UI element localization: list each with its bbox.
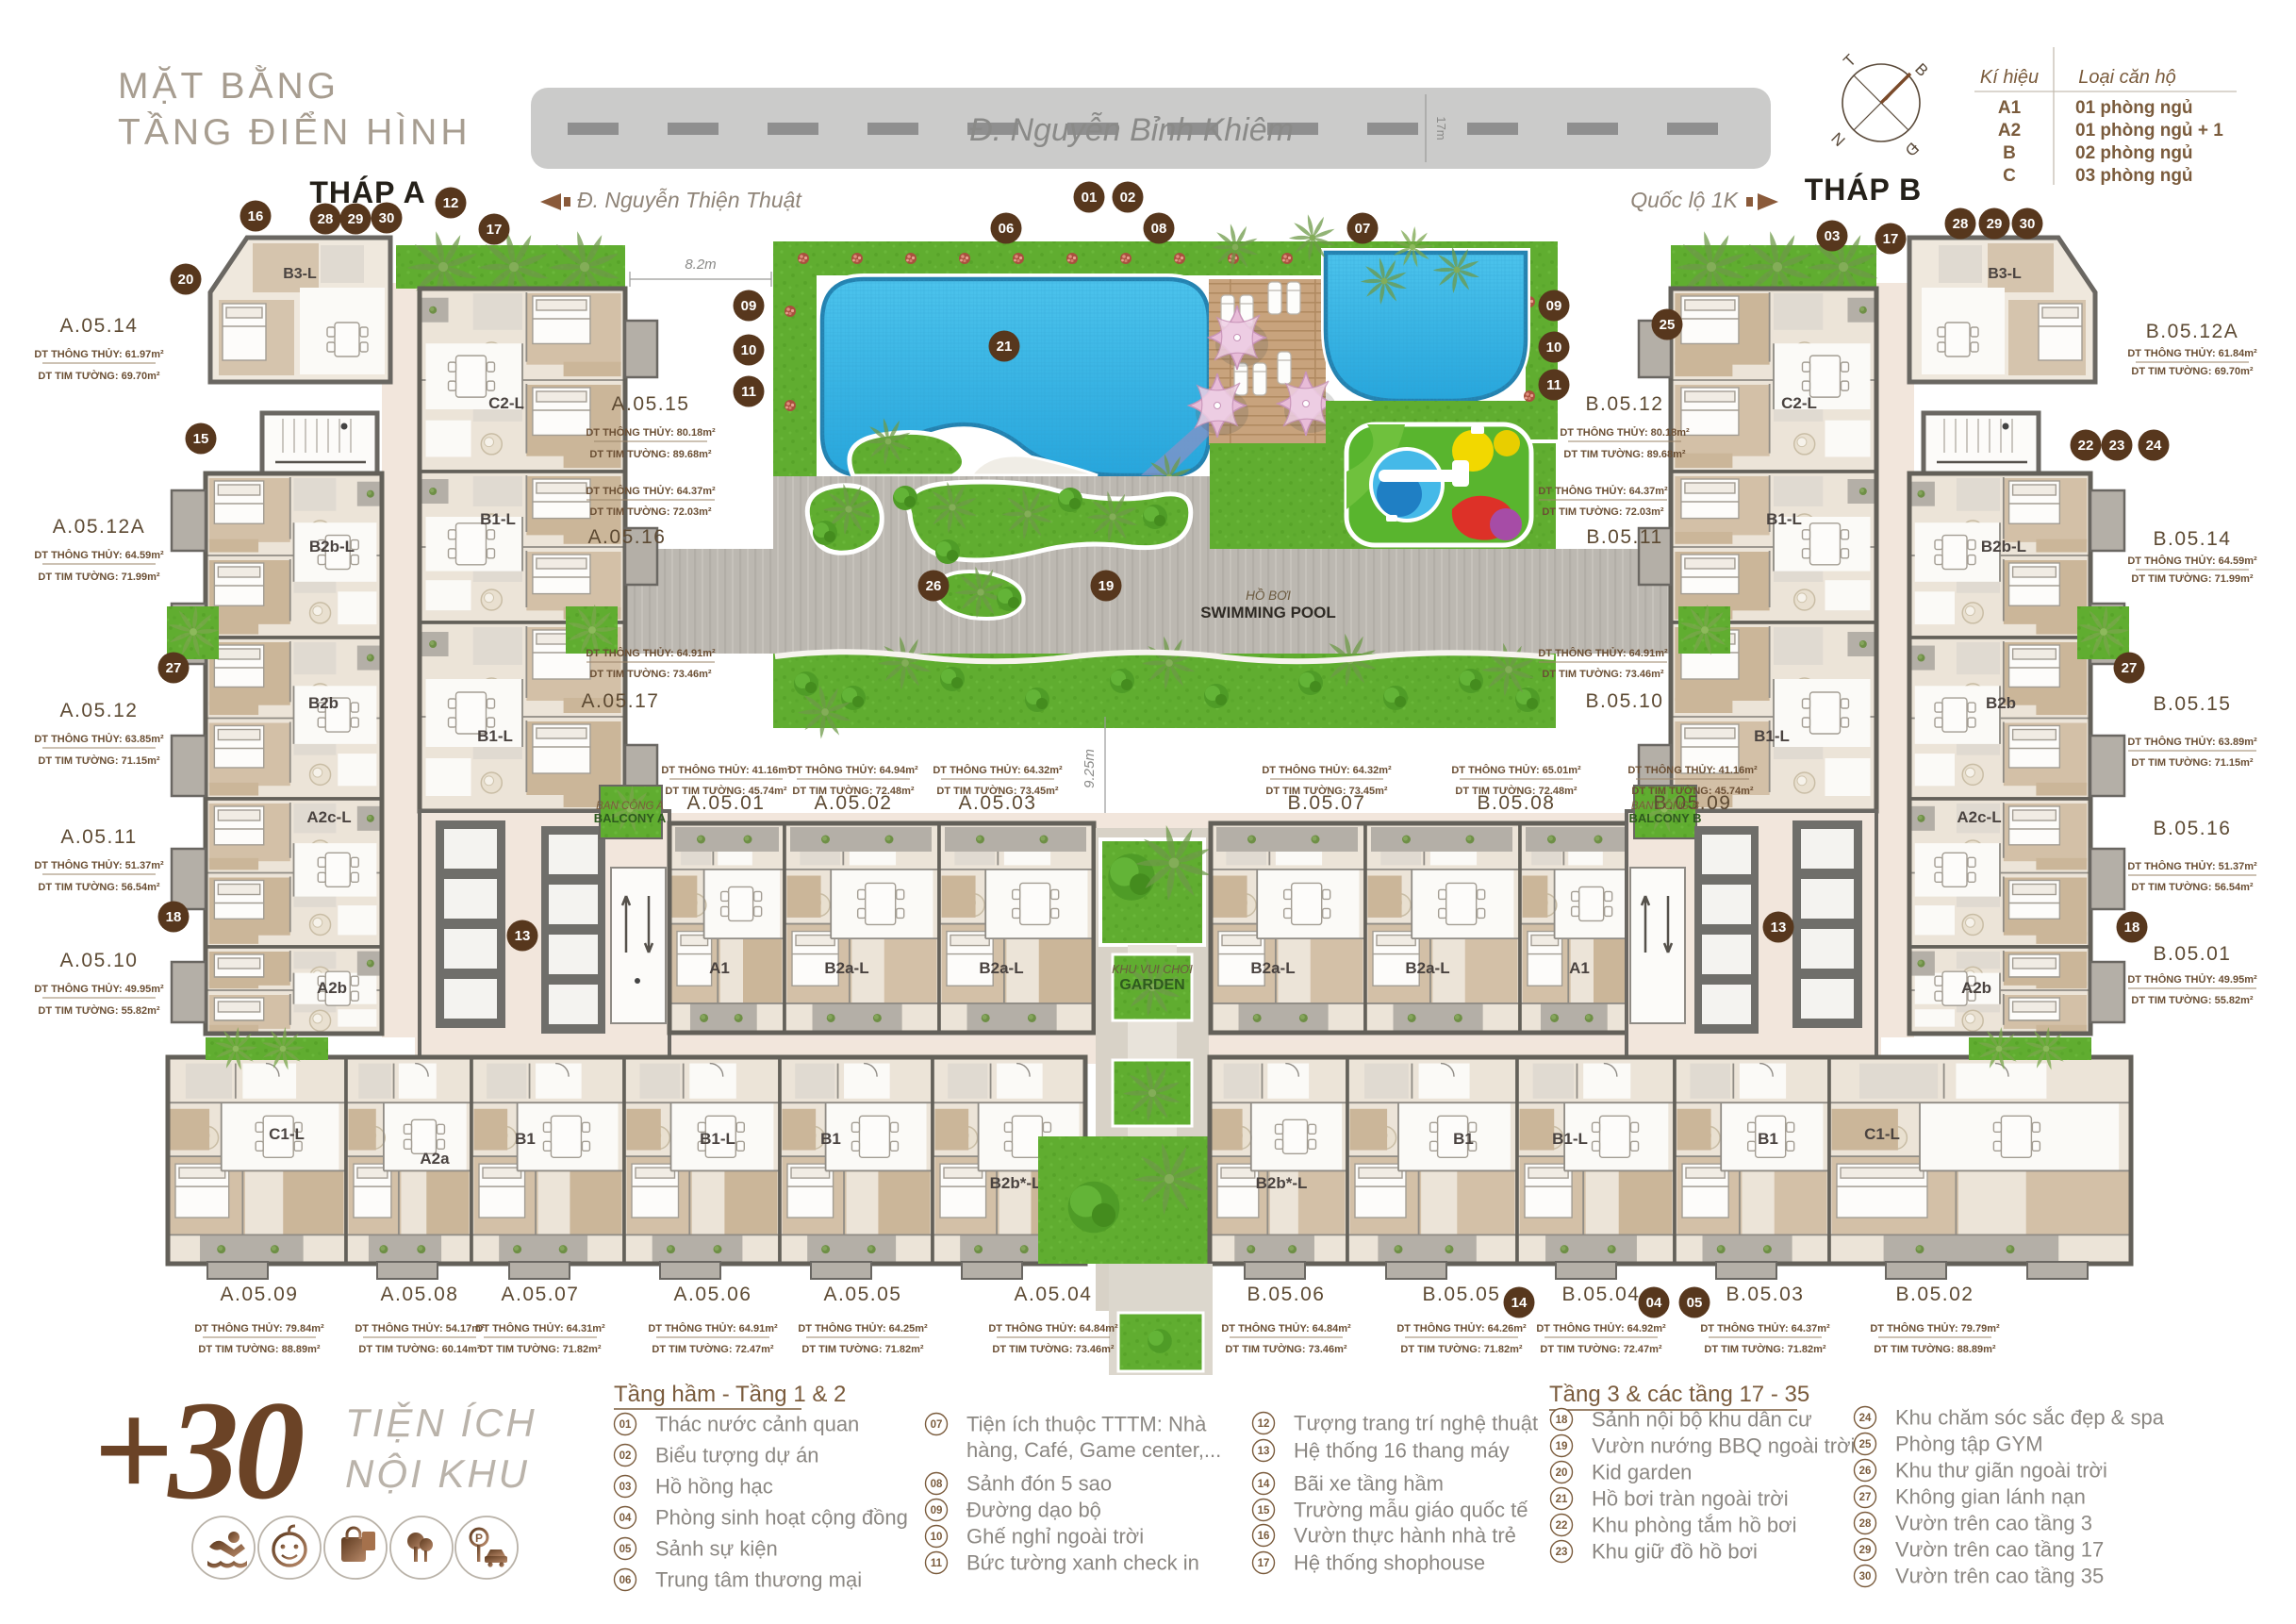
svg-text:DT THÔNG THỦY: 64.91m²: DT THÔNG THỦY: 64.91m² — [1538, 647, 1668, 659]
svg-text:TẦNG ĐIỂN HÌNH: TẦNG ĐIỂN HÌNH — [118, 110, 471, 153]
svg-text:MẶT BẰNG: MẶT BẰNG — [118, 65, 339, 107]
svg-text:A2b: A2b — [1961, 979, 1991, 997]
svg-text:Vườn thực hành nhà trẻ: Vườn thực hành nhà trẻ — [1294, 1524, 1516, 1548]
svg-text:01: 01 — [1082, 190, 1098, 206]
svg-text:DT TIM TƯỜNG: 73.46m²: DT TIM TƯỜNG: 73.46m² — [589, 668, 711, 680]
svg-text:B2a-L: B2a-L — [979, 959, 1023, 977]
svg-text:B2b-L: B2b-L — [1981, 538, 2026, 555]
svg-text:Ghế nghỉ ngoài trời: Ghế nghỉ ngoài trời — [966, 1525, 1144, 1549]
svg-text:KHU VUI CHƠI: KHU VUI CHƠI — [1112, 963, 1193, 976]
svg-text:DT THÔNG THỦY: 64.32m²: DT THÔNG THỦY: 64.32m² — [933, 764, 1063, 776]
svg-text:26: 26 — [1859, 1466, 1872, 1477]
svg-text:Khu chăm sóc sắc đẹp & spa: Khu chăm sóc sắc đẹp & spa — [1895, 1406, 2165, 1430]
svg-text:02: 02 — [1120, 190, 1136, 206]
svg-text:Bãi xe tầng hầm: Bãi xe tầng hầm — [1294, 1472, 1444, 1496]
svg-text:DT TIM TƯỜNG: 69.70m²: DT TIM TƯỜNG: 69.70m² — [2131, 365, 2253, 377]
svg-text:DT TIM TƯỜNG: 72.47m²: DT TIM TƯỜNG: 72.47m² — [652, 1343, 773, 1355]
svg-text:SWIMMING POOL: SWIMMING POOL — [1200, 604, 1336, 621]
svg-text:B.05.08: B.05.08 — [1478, 792, 1556, 814]
svg-text:DT TIM TƯỜNG: 56.54m²: DT TIM TƯỜNG: 56.54m² — [38, 881, 159, 893]
svg-text:DT THÔNG THỦY: 79.84m²: DT THÔNG THỦY: 79.84m² — [194, 1322, 324, 1334]
svg-text:B.05.12: B.05.12 — [1586, 393, 1664, 415]
svg-text:B.05.11: B.05.11 — [1586, 526, 1662, 548]
svg-text:22: 22 — [1556, 1520, 1568, 1532]
svg-text:06: 06 — [619, 1575, 632, 1586]
svg-text:B.05.12A: B.05.12A — [2146, 321, 2238, 342]
svg-text:DT THÔNG THỦY: 49.95m²: DT THÔNG THỦY: 49.95m² — [34, 983, 164, 995]
svg-text:A2c-L: A2c-L — [306, 808, 351, 826]
svg-text:13: 13 — [515, 928, 531, 944]
svg-text:05: 05 — [1687, 1295, 1703, 1311]
svg-text:DT TIM TƯỜNG: 71.99m²: DT TIM TƯỜNG: 71.99m² — [2131, 572, 2253, 585]
svg-text:DT TIM TƯỜNG: 72.47m²: DT TIM TƯỜNG: 72.47m² — [1540, 1343, 1661, 1355]
svg-text:17: 17 — [487, 222, 503, 238]
svg-text:A.05.16: A.05.16 — [588, 526, 667, 548]
svg-text:A2c-L: A2c-L — [1957, 808, 2001, 826]
svg-text:A1: A1 — [709, 959, 730, 977]
svg-text:A.05.12: A.05.12 — [60, 700, 139, 721]
svg-text:B2b: B2b — [308, 694, 339, 712]
svg-text:Vườn trên cao tầng 35: Vườn trên cao tầng 35 — [1895, 1565, 2104, 1588]
svg-text:17: 17 — [1258, 1558, 1270, 1569]
svg-text:A.05.17: A.05.17 — [582, 690, 660, 712]
svg-text:Đ. Nguyễn Thiện Thuật: Đ. Nguyễn Thiện Thuật — [577, 187, 802, 212]
svg-text:A1: A1 — [1569, 959, 1590, 977]
svg-text:A2: A2 — [1998, 121, 2021, 141]
svg-text:DT TIM TƯỜNG: 88.89m²: DT TIM TƯỜNG: 88.89m² — [198, 1343, 320, 1355]
svg-text:A2b: A2b — [317, 979, 347, 997]
svg-text:A.05.03: A.05.03 — [959, 792, 1037, 814]
svg-text:08: 08 — [1151, 221, 1167, 237]
svg-text:A.05.09: A.05.09 — [221, 1284, 299, 1305]
svg-text:DT THÔNG THỦY: 63.85m²: DT THÔNG THỦY: 63.85m² — [34, 733, 164, 745]
svg-text:Đ. Nguyễn Bỉnh Khiêm: Đ. Nguyễn Bỉnh Khiêm — [969, 112, 1294, 148]
svg-text:Trung tâm thương mại: Trung tâm thương mại — [655, 1568, 862, 1592]
svg-text:A.05.15: A.05.15 — [612, 393, 690, 415]
svg-text:A1: A1 — [1998, 98, 2022, 118]
svg-text:DT TIM TƯỜNG: 71.82m²: DT TIM TƯỜNG: 71.82m² — [1704, 1343, 1825, 1355]
svg-text:09: 09 — [741, 298, 757, 314]
svg-text:Loại căn hộ: Loại căn hộ — [2078, 67, 2175, 88]
svg-text:Quốc lộ 1K: Quốc lộ 1K — [1630, 188, 1739, 212]
svg-text:DT TIM TƯỜNG: 73.46m²: DT TIM TƯỜNG: 73.46m² — [1225, 1343, 1346, 1355]
svg-text:B2b-L: B2b-L — [309, 538, 355, 555]
svg-text:Bức tường xanh check in: Bức tường xanh check in — [966, 1551, 1199, 1575]
svg-text:DT THÔNG THỦY: 64.84m²: DT THÔNG THỦY: 64.84m² — [988, 1322, 1118, 1334]
svg-text:Đường dạo bộ: Đường dạo bộ — [966, 1499, 1101, 1522]
svg-text:21: 21 — [997, 339, 1013, 355]
svg-text:03: 03 — [1825, 228, 1841, 244]
svg-text:Biểu tượng dự án: Biểu tượng dự án — [655, 1444, 819, 1467]
svg-text:DT TIM TƯỜNG: 71.15m²: DT TIM TƯỜNG: 71.15m² — [38, 754, 159, 767]
svg-text:DT THÔNG THỦY: 64.26m²: DT THÔNG THỦY: 64.26m² — [1396, 1322, 1527, 1334]
svg-text:02: 02 — [619, 1450, 632, 1462]
svg-text:09: 09 — [931, 1505, 943, 1516]
svg-text:DT THÔNG THỦY: 64.31m²: DT THÔNG THỦY: 64.31m² — [475, 1322, 605, 1334]
svg-text:21: 21 — [1556, 1494, 1568, 1505]
svg-text:P: P — [475, 1532, 483, 1545]
svg-text:29: 29 — [1987, 216, 2003, 232]
svg-text:A.05.06: A.05.06 — [674, 1284, 752, 1305]
svg-text:+30: +30 — [92, 1372, 303, 1529]
svg-text:B.05.15: B.05.15 — [2154, 693, 2232, 715]
svg-text:Tiện ích thuộc TTTM: Nhà: Tiện ích thuộc TTTM: Nhà — [966, 1413, 1207, 1436]
svg-text:A.05.10: A.05.10 — [60, 950, 139, 971]
svg-text:TIỆN ÍCH: TIỆN ÍCH — [345, 1400, 537, 1445]
svg-text:DT THÔNG THỦY: 64.91m²: DT THÔNG THỦY: 64.91m² — [586, 647, 716, 659]
svg-text:DT TIM TƯỜNG: 71.99m²: DT TIM TƯỜNG: 71.99m² — [38, 571, 159, 583]
svg-text:20: 20 — [1556, 1467, 1568, 1479]
svg-text:B1-L: B1-L — [1552, 1130, 1588, 1148]
svg-text:DT THÔNG THỦY: 64.37m²: DT THÔNG THỦY: 64.37m² — [1700, 1322, 1830, 1334]
svg-text:DT TIM TƯỜNG: 69.70m²: DT TIM TƯỜNG: 69.70m² — [38, 370, 159, 382]
svg-text:DT THÔNG THỦY: 41.16m²: DT THÔNG THỦY: 41.16m² — [1627, 764, 1758, 776]
svg-text:25: 25 — [1859, 1439, 1872, 1450]
svg-text:15: 15 — [1258, 1505, 1270, 1516]
svg-text:BALCONY A: BALCONY A — [594, 811, 667, 825]
svg-text:Thác nước cảnh quan: Thác nước cảnh quan — [655, 1413, 859, 1436]
svg-text:DT THÔNG THỦY: 64.32m²: DT THÔNG THỦY: 64.32m² — [1262, 764, 1392, 776]
svg-text:A.05.11: A.05.11 — [60, 826, 137, 848]
svg-text:B2a-L: B2a-L — [1250, 959, 1295, 977]
svg-text:14: 14 — [1511, 1295, 1528, 1311]
svg-text:28: 28 — [318, 211, 334, 227]
svg-text:Khu phòng tắm hồ bơi: Khu phòng tắm hồ bơi — [1592, 1514, 1796, 1537]
svg-text:Tượng trang trí nghệ thuật: Tượng trang trí nghệ thuật — [1294, 1412, 1538, 1435]
svg-text:B1-L: B1-L — [477, 727, 513, 745]
svg-text:29: 29 — [348, 211, 364, 227]
svg-text:Phòng tập GYM: Phòng tập GYM — [1895, 1433, 2043, 1456]
svg-text:18: 18 — [166, 909, 182, 925]
svg-text:DT TIM TƯỜNG: 72.03m²: DT TIM TƯỜNG: 72.03m² — [1542, 505, 1663, 518]
svg-text:GARDEN: GARDEN — [1119, 977, 1184, 993]
svg-text:Trường mẫu giáo quốc tế: Trường mẫu giáo quốc tế — [1294, 1499, 1528, 1522]
svg-text:Khu giữ đồ hồ bơi: Khu giữ đồ hồ bơi — [1592, 1540, 1758, 1564]
svg-text:DT THÔNG THỦY: 64.84m²: DT THÔNG THỦY: 64.84m² — [1221, 1322, 1351, 1334]
svg-text:B.05.14: B.05.14 — [2154, 528, 2232, 550]
svg-text:C1-L: C1-L — [1864, 1125, 1900, 1143]
svg-text:A.05.05: A.05.05 — [824, 1284, 902, 1305]
svg-text:Vườn trên cao tầng 17: Vườn trên cao tầng 17 — [1895, 1538, 2104, 1562]
svg-text:DT THÔNG THỦY: 80.18m²: DT THÔNG THỦY: 80.18m² — [586, 426, 716, 439]
svg-text:DT THÔNG THỦY: 64.91m²: DT THÔNG THỦY: 64.91m² — [648, 1322, 778, 1334]
svg-text:DT TIM TƯỜNG: 71.15m²: DT TIM TƯỜNG: 71.15m² — [2131, 756, 2253, 769]
svg-text:A.05.14: A.05.14 — [60, 315, 139, 337]
svg-text:26: 26 — [926, 578, 942, 594]
svg-text:Phòng sinh hoạt cộng đồng: Phòng sinh hoạt cộng đồng — [655, 1506, 908, 1530]
svg-text:DT THÔNG THỦY: 54.17m²: DT THÔNG THỦY: 54.17m² — [355, 1322, 485, 1334]
svg-text:B1-L: B1-L — [1754, 727, 1790, 745]
svg-text:Kid garden: Kid garden — [1592, 1461, 1692, 1484]
svg-text:09: 09 — [1546, 298, 1562, 314]
svg-text:01 phòng ngủ: 01 phòng ngủ — [2075, 98, 2193, 118]
svg-text:Hệ thống shophouse: Hệ thống shophouse — [1294, 1551, 1485, 1575]
svg-text:01 phòng ngủ + 1: 01 phòng ngủ + 1 — [2075, 121, 2223, 141]
svg-text:B2b: B2b — [1986, 694, 2016, 712]
svg-text:B2b*-L: B2b*-L — [990, 1174, 1042, 1192]
svg-text:B1: B1 — [1453, 1130, 1474, 1148]
svg-text:C1-L: C1-L — [269, 1125, 305, 1143]
svg-text:C: C — [2003, 166, 2016, 186]
svg-text:10: 10 — [1546, 340, 1562, 356]
svg-text:Hệ thống 16 thang máy: Hệ thống 16 thang máy — [1294, 1439, 1510, 1463]
svg-text:12: 12 — [443, 195, 459, 211]
svg-text:B.05.03: B.05.03 — [1726, 1284, 1805, 1305]
svg-text:Tầng 3 & các tầng 17 - 35: Tầng 3 & các tầng 17 - 35 — [1549, 1382, 1809, 1407]
svg-text:Không gian lánh nạn: Không gian lánh nạn — [1895, 1485, 2086, 1509]
svg-text:11: 11 — [1546, 377, 1561, 393]
svg-text:A2a: A2a — [420, 1150, 450, 1168]
svg-text:DT TIM TƯỜNG: 72.03m²: DT TIM TƯỜNG: 72.03m² — [589, 505, 711, 518]
svg-text:A.05.08: A.05.08 — [381, 1284, 459, 1305]
svg-text:06: 06 — [999, 221, 1015, 237]
svg-text:B.05.02: B.05.02 — [1896, 1284, 1974, 1305]
svg-text:22: 22 — [2078, 438, 2094, 454]
svg-text:18: 18 — [2124, 920, 2140, 936]
svg-text:BALCONY B: BALCONY B — [1628, 811, 1701, 825]
svg-text:B.05.01: B.05.01 — [2154, 943, 2232, 965]
svg-text:11: 11 — [931, 1558, 943, 1569]
svg-text:10: 10 — [741, 342, 757, 358]
svg-text:B.05.04: B.05.04 — [1562, 1284, 1641, 1305]
svg-text:A.05.01: A.05.01 — [687, 792, 766, 814]
svg-text:C2-L: C2-L — [488, 394, 524, 412]
svg-text:27: 27 — [166, 660, 182, 676]
svg-text:23: 23 — [1556, 1547, 1568, 1558]
svg-text:29: 29 — [1859, 1545, 1872, 1556]
svg-text:16: 16 — [248, 208, 264, 224]
svg-text:Sảnh sự kiện: Sảnh sự kiện — [655, 1537, 778, 1561]
svg-text:DT TIM TƯỜNG: 89.68m²: DT TIM TƯỜNG: 89.68m² — [1563, 448, 1685, 460]
svg-text:8.2m: 8.2m — [685, 257, 716, 273]
svg-text:18: 18 — [1556, 1415, 1568, 1426]
svg-text:Vườn nướng BBQ ngoài trời: Vườn nướng BBQ ngoài trời — [1592, 1434, 1855, 1458]
svg-text:A.05.02: A.05.02 — [815, 792, 893, 814]
svg-text:27: 27 — [2122, 660, 2138, 676]
svg-text:B1: B1 — [1758, 1130, 1778, 1148]
svg-text:13: 13 — [1771, 920, 1787, 936]
svg-text:B.05.16: B.05.16 — [2154, 818, 2232, 839]
svg-text:11: 11 — [741, 384, 756, 400]
svg-text:DT THÔNG THỦY: 49.95m²: DT THÔNG THỦY: 49.95m² — [2127, 973, 2257, 986]
svg-text:Hồ bơi tràn ngoài trời: Hồ bơi tràn ngoài trời — [1592, 1487, 1789, 1511]
svg-text:DT TIM TƯỜNG: 89.68m²: DT TIM TƯỜNG: 89.68m² — [589, 448, 711, 460]
svg-text:DT THÔNG THỦY: 64.94m²: DT THÔNG THỦY: 64.94m² — [788, 764, 918, 776]
svg-text:B1: B1 — [515, 1130, 536, 1148]
svg-text:THÁP B: THÁP B — [1805, 173, 1923, 207]
svg-text:07: 07 — [931, 1419, 943, 1431]
svg-text:03: 03 — [619, 1482, 632, 1493]
svg-text:B: B — [2003, 143, 2016, 163]
svg-text:24: 24 — [2146, 438, 2162, 454]
svg-text:DT THÔNG THỦY: 64.37m²: DT THÔNG THỦY: 64.37m² — [586, 485, 716, 497]
svg-text:DT THÔNG THỦY: 64.59m²: DT THÔNG THỦY: 64.59m² — [2127, 555, 2257, 567]
svg-text:DT THÔNG THỦY: 64.59m²: DT THÔNG THỦY: 64.59m² — [34, 549, 164, 561]
svg-text:B3-L: B3-L — [283, 266, 317, 282]
svg-text:27: 27 — [1859, 1492, 1872, 1503]
svg-text:02 phòng ngủ: 02 phòng ngủ — [2075, 143, 2193, 163]
svg-text:17m: 17m — [1434, 116, 1448, 140]
svg-text:28: 28 — [1859, 1518, 1872, 1530]
svg-text:Sảnh đón 5 sao: Sảnh đón 5 sao — [966, 1472, 1112, 1496]
svg-text:28: 28 — [1953, 216, 1969, 232]
svg-text:25: 25 — [1660, 317, 1676, 333]
svg-text:DT THÔNG THỦY: 64.25m²: DT THÔNG THỦY: 64.25m² — [798, 1322, 928, 1334]
svg-text:B1: B1 — [820, 1130, 841, 1148]
svg-text:B2a-L: B2a-L — [1405, 959, 1449, 977]
svg-text:A.05.07: A.05.07 — [502, 1284, 580, 1305]
svg-text:24: 24 — [1859, 1413, 1872, 1424]
svg-text:Khu thư giãn ngoài trời: Khu thư giãn ngoài trời — [1895, 1459, 2107, 1483]
svg-text:DT TIM TƯỜNG: 60.14m²: DT TIM TƯỜNG: 60.14m² — [358, 1343, 480, 1355]
svg-text:B2b*-L: B2b*-L — [1256, 1174, 1308, 1192]
svg-text:30: 30 — [1859, 1571, 1872, 1583]
svg-text:19: 19 — [1556, 1441, 1568, 1452]
svg-text:DT THÔNG THỦY: 61.84m²: DT THÔNG THỦY: 61.84m² — [2127, 347, 2257, 359]
svg-text:30: 30 — [2020, 216, 2036, 232]
svg-text:DT TIM TƯỜNG: 55.82m²: DT TIM TƯỜNG: 55.82m² — [2131, 994, 2253, 1006]
svg-text:DT THÔNG THỦY: 65.01m²: DT THÔNG THỦY: 65.01m² — [1451, 764, 1581, 776]
svg-text:DT TIM TƯỜNG: 71.82m²: DT TIM TƯỜNG: 71.82m² — [801, 1343, 923, 1355]
svg-text:Hồ hồng hạc: Hồ hồng hạc — [655, 1475, 773, 1499]
svg-text:17: 17 — [1883, 231, 1899, 247]
svg-text:Tầng hầm - Tầng 1 & 2: Tầng hầm - Tầng 1 & 2 — [614, 1382, 846, 1407]
svg-text:07: 07 — [1355, 221, 1371, 237]
svg-text:B2a-L: B2a-L — [824, 959, 868, 977]
svg-text:DT THÔNG THỦY: 63.89m²: DT THÔNG THỦY: 63.89m² — [2127, 736, 2257, 748]
svg-text:DT THÔNG THỦY: 41.16m²: DT THÔNG THỦY: 41.16m² — [661, 764, 791, 776]
svg-text:DT TIM TƯỜNG: 56.54m²: DT TIM TƯỜNG: 56.54m² — [2131, 881, 2253, 893]
svg-text:DT THÔNG THỦY: 61.97m²: DT THÔNG THỦY: 61.97m² — [34, 348, 164, 360]
svg-text:HỒ BƠI: HỒ BƠI — [1246, 588, 1291, 603]
svg-text:DT TIM TƯỜNG: 88.89m²: DT TIM TƯỜNG: 88.89m² — [1874, 1343, 1995, 1355]
svg-text:DT TIM TƯỜNG: 71.82m²: DT TIM TƯỜNG: 71.82m² — [1400, 1343, 1522, 1355]
svg-text:01: 01 — [619, 1419, 632, 1431]
svg-text:DT TIM TƯỜNG: 73.46m²: DT TIM TƯỜNG: 73.46m² — [1542, 668, 1663, 680]
svg-text:B1-L: B1-L — [700, 1130, 735, 1148]
svg-text:12: 12 — [1258, 1418, 1270, 1430]
svg-text:A.05.12A: A.05.12A — [53, 516, 145, 538]
svg-text:19: 19 — [1098, 578, 1115, 594]
svg-text:DT THÔNG THỦY: 79.79m²: DT THÔNG THỦY: 79.79m² — [1870, 1322, 2000, 1334]
svg-text:DT THÔNG THỦY: 51.37m²: DT THÔNG THỦY: 51.37m² — [2127, 860, 2257, 872]
svg-text:B3-L: B3-L — [1988, 266, 2022, 282]
svg-text:20: 20 — [178, 272, 194, 288]
svg-text:DT THÔNG THỦY: 64.37m²: DT THÔNG THỦY: 64.37m² — [1538, 485, 1668, 497]
svg-text:10: 10 — [931, 1532, 943, 1543]
svg-text:A.05.04: A.05.04 — [1015, 1284, 1093, 1305]
svg-text:B1-L: B1-L — [480, 510, 516, 528]
svg-text:30: 30 — [379, 210, 395, 226]
svg-text:13: 13 — [1258, 1446, 1270, 1457]
svg-text:05: 05 — [619, 1544, 632, 1555]
svg-text:DT TIM TƯỜNG: 71.82m²: DT TIM TƯỜNG: 71.82m² — [479, 1343, 601, 1355]
svg-text:15: 15 — [193, 431, 209, 447]
svg-text:03 phòng ngủ: 03 phòng ngủ — [2075, 166, 2193, 186]
svg-text:04: 04 — [1646, 1295, 1662, 1311]
svg-text:B.05.10: B.05.10 — [1586, 690, 1664, 712]
svg-text:NỘI KHU: NỘI KHU — [345, 1451, 530, 1496]
svg-text:hàng, Café, Game center,...: hàng, Café, Game center,... — [966, 1438, 1221, 1462]
svg-text:Vườn trên cao tầng 3: Vườn trên cao tầng 3 — [1895, 1512, 2092, 1535]
svg-text:Kí hiệu: Kí hiệu — [1980, 67, 2039, 88]
svg-text:DT TIM TƯỜNG: 55.82m²: DT TIM TƯỜNG: 55.82m² — [38, 1004, 159, 1017]
svg-text:08: 08 — [931, 1479, 943, 1490]
svg-text:B.05.06: B.05.06 — [1247, 1284, 1326, 1305]
svg-text:B.05.07: B.05.07 — [1288, 792, 1366, 814]
svg-text:16: 16 — [1258, 1531, 1270, 1542]
svg-text:04: 04 — [619, 1513, 632, 1524]
svg-text:B.05.05: B.05.05 — [1423, 1284, 1501, 1305]
svg-text:B1-L: B1-L — [1766, 510, 1802, 528]
svg-text:23: 23 — [2109, 438, 2125, 454]
svg-text:14: 14 — [1258, 1479, 1270, 1490]
svg-text:DT THÔNG THỦY: 64.92m²: DT THÔNG THỦY: 64.92m² — [1536, 1322, 1666, 1334]
svg-text:9.25m: 9.25m — [1082, 749, 1098, 788]
svg-text:Sảnh nội bộ khu dân cư: Sảnh nội bộ khu dân cư — [1592, 1408, 1812, 1432]
svg-text:DT THÔNG THỦY: 80.18m²: DT THÔNG THỦY: 80.18m² — [1560, 426, 1690, 439]
svg-text:DT TIM TƯỜNG: 73.46m²: DT TIM TƯỜNG: 73.46m² — [992, 1343, 1114, 1355]
svg-text:C2-L: C2-L — [1781, 394, 1817, 412]
svg-text:DT THÔNG THỦY: 51.37m²: DT THÔNG THỦY: 51.37m² — [34, 859, 164, 871]
